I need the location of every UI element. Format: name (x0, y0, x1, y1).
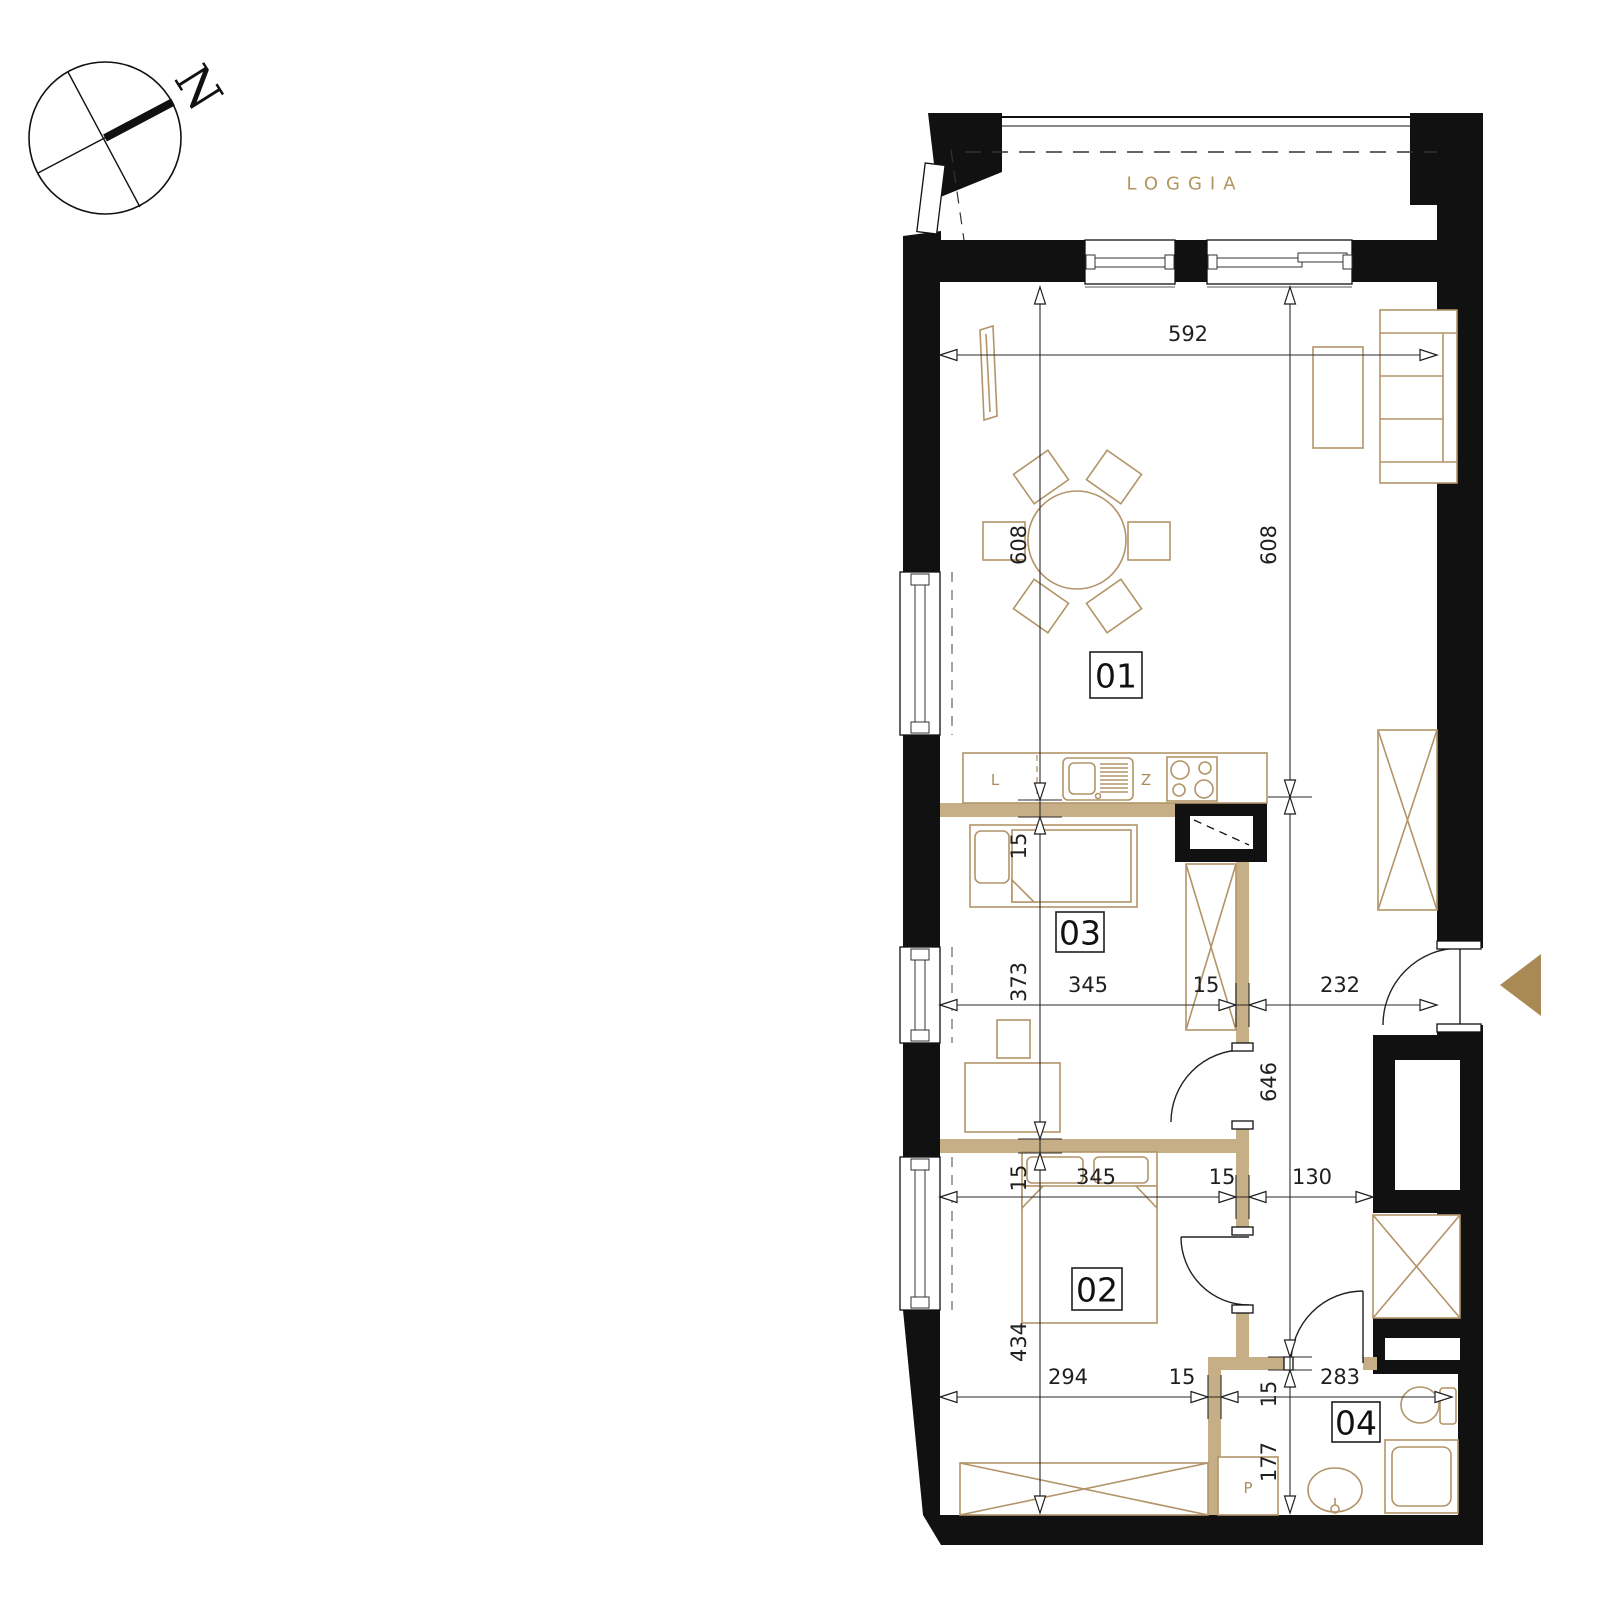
room-label-03: 03 (1056, 912, 1104, 953)
dining-table (1028, 491, 1126, 589)
wall-left-c (903, 1043, 940, 1157)
dim-chain-right: 608 646 15 177 (1257, 287, 1312, 1513)
balcony-door-window (1207, 240, 1352, 287)
dim-value: 608 (1007, 525, 1031, 565)
dim-value: 592 (1168, 322, 1208, 346)
shower (1385, 1440, 1458, 1513)
toilet (1401, 1387, 1456, 1424)
dim-value: 608 (1257, 525, 1281, 565)
room-number: 04 (1335, 1404, 1377, 1443)
room-partition-02-03 (940, 1139, 1249, 1153)
room-number: 01 (1095, 657, 1137, 696)
entrance-arrow-icon (1500, 954, 1541, 1016)
partition-walls (940, 803, 1377, 1515)
door-room3 (1171, 1043, 1253, 1129)
desk-chair (997, 1020, 1030, 1058)
door-room2 (1181, 1227, 1253, 1313)
wall-loggia-a (925, 240, 1085, 282)
kitchen-counter: L Z (963, 753, 1267, 803)
left-window (900, 947, 952, 1043)
cooktop (1167, 757, 1217, 801)
dim-value: 177 (1257, 1442, 1281, 1482)
room-label-01: 01 (1090, 652, 1142, 698)
north-label: N (163, 55, 233, 120)
dim-value: 434 (1007, 1322, 1031, 1362)
dim-value: 294 (1048, 1365, 1088, 1389)
dim-value: 15 (1257, 1381, 1281, 1408)
tv-sideboard (980, 326, 997, 420)
bath-niche-inner (1385, 1338, 1460, 1360)
sofa (1380, 310, 1457, 483)
dim-value: 232 (1320, 973, 1360, 997)
loggia-label: LOGGIA (1126, 174, 1243, 195)
dim-chain-top: 592 (940, 322, 1437, 361)
dim-value: 130 (1292, 1165, 1332, 1189)
balcony-door-window (1085, 240, 1175, 287)
compass-cross-line (68, 72, 140, 207)
room-number: 03 (1059, 914, 1101, 953)
room-label-02: 02 (1072, 1268, 1122, 1310)
dining-chair (1128, 522, 1170, 560)
dim-value: 373 (1007, 962, 1031, 1002)
wall-left-d (903, 1310, 940, 1515)
left-window (900, 1157, 952, 1310)
wall-top-right-corner (1410, 113, 1483, 205)
hall-wall-lower (1236, 1306, 1249, 1360)
wardrobe (1373, 1215, 1460, 1318)
room-label-04: 04 (1332, 1402, 1380, 1443)
dim-value: 15 (1007, 1165, 1031, 1192)
dining-chair (1013, 579, 1068, 633)
dim-value: 15 (1007, 833, 1031, 860)
compass-needle (105, 102, 173, 138)
wall-loggia-b (1352, 240, 1437, 282)
loggia-side-window (917, 163, 945, 234)
dim-value: 15 (1169, 1365, 1196, 1389)
dim-value: 15 (1193, 973, 1220, 997)
bath-door-pier (1363, 1357, 1377, 1370)
door-bathroom (1284, 1291, 1363, 1370)
wall-left-a (903, 282, 940, 572)
washer-label: P (1243, 1479, 1252, 1497)
washbasin (1308, 1468, 1362, 1513)
hall-wall-upper (1236, 862, 1249, 1050)
dim-value: 345 (1076, 1165, 1116, 1189)
dining-chair (1086, 579, 1141, 633)
single-bed (970, 825, 1137, 907)
wall-bottom (923, 1515, 1483, 1545)
kitchen-sink (1063, 758, 1133, 800)
wardrobe (960, 1463, 1208, 1515)
kitchen-partition (940, 803, 1175, 817)
hall-wall-mid (1236, 1122, 1249, 1235)
floor-plan-page: N (0, 0, 1600, 1600)
wall-left-b (903, 735, 940, 947)
room-number: 02 (1076, 1271, 1118, 1310)
floor-plan-svg: N (0, 0, 1600, 1600)
fridge-label: L (991, 771, 1000, 789)
left-window (900, 572, 952, 735)
sink-label: Z (1141, 771, 1151, 789)
coffee-table (1313, 347, 1363, 448)
entrance-door (1383, 941, 1481, 1032)
dim-value: 345 (1068, 973, 1108, 997)
wall-loggia-pier (1175, 240, 1207, 282)
dim-value: 646 (1257, 1062, 1281, 1102)
wall-right-c (1458, 1374, 1483, 1543)
hall-shaft-inner (1395, 1060, 1460, 1190)
dim-value: 283 (1320, 1365, 1360, 1389)
wardrobe (1378, 730, 1437, 910)
compass: N (29, 55, 233, 214)
dim-value: 15 (1209, 1165, 1236, 1189)
